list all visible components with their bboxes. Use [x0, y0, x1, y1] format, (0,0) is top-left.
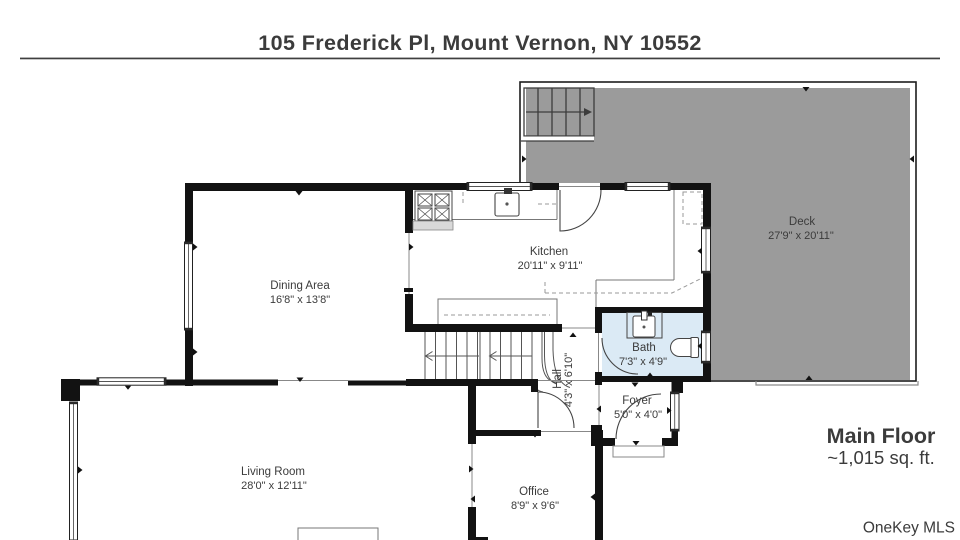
svg-text:Bath: Bath	[632, 342, 656, 354]
svg-text:Main Floor: Main Floor	[827, 424, 936, 448]
svg-text:5'0" x 4'0": 5'0" x 4'0"	[614, 409, 662, 421]
svg-text:7'3" x 4'9": 7'3" x 4'9"	[619, 356, 667, 368]
svg-text:105 Frederick Pl, Mount Vernon: 105 Frederick Pl, Mount Vernon, NY 10552	[258, 31, 701, 55]
svg-text:Foyer: Foyer	[622, 395, 652, 407]
svg-text:Office: Office	[519, 486, 549, 498]
svg-text:Deck: Deck	[789, 216, 815, 228]
svg-text:20'11" x 9'11": 20'11" x 9'11"	[518, 260, 583, 272]
svg-text:8'9" x 9'6": 8'9" x 9'6"	[511, 500, 559, 512]
svg-text:4'3" x 6'10": 4'3" x 6'10"	[563, 353, 575, 407]
svg-text:28'0" x 12'11": 28'0" x 12'11"	[241, 480, 307, 492]
svg-text:Living Room: Living Room	[241, 466, 305, 478]
svg-text:~1,015 sq. ft.: ~1,015 sq. ft.	[827, 447, 934, 468]
svg-text:27'9" x 20'11": 27'9" x 20'11"	[768, 230, 834, 242]
svg-text:16'8" x 13'8": 16'8" x 13'8"	[270, 294, 330, 306]
svg-text:Kitchen: Kitchen	[530, 246, 568, 258]
svg-text:Dining Area: Dining Area	[270, 280, 330, 292]
svg-text:OneKey MLS: OneKey MLS	[863, 520, 955, 537]
